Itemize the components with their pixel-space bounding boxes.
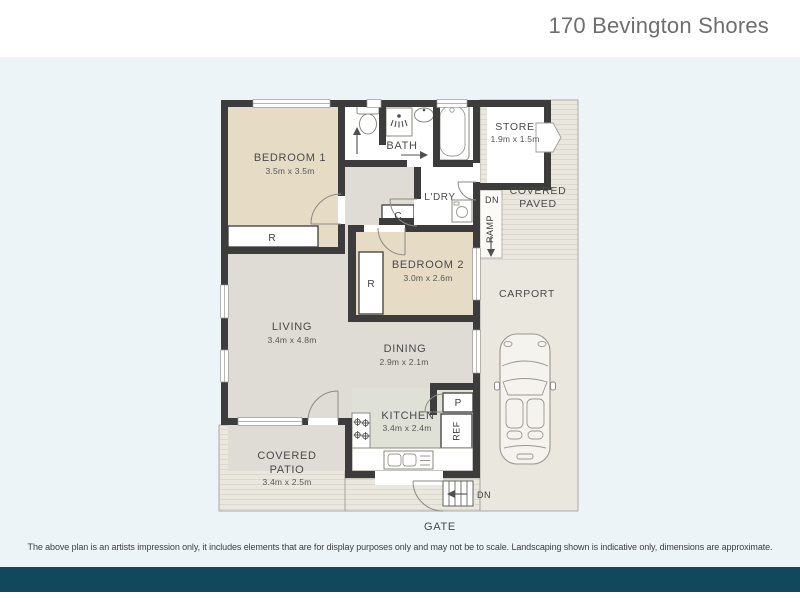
wall (345, 160, 407, 167)
bedroom1-label: BEDROOM 1 (254, 152, 326, 164)
wall (433, 100, 440, 162)
shower-head-icon (397, 114, 401, 118)
wall (433, 160, 480, 167)
bedroom2-dims: 3.0m x 2.6m (404, 273, 453, 283)
store-dims: 1.9m x 1.5m (491, 134, 540, 144)
floorplan-page: 170 Bevington Shores (0, 0, 800, 604)
ramp-label: RAMP (485, 215, 495, 243)
wall (221, 247, 345, 254)
kitchen-dims: 3.4m x 2.4m (383, 423, 432, 433)
bedroom1-dims: 3.5m x 3.5m (266, 166, 315, 176)
carport-label: CARPORT (499, 288, 555, 300)
door-opening (308, 418, 338, 425)
stove-icon (352, 413, 370, 450)
page-title: 170 Bevington Shores (549, 13, 770, 39)
cupboard-marker: C (394, 211, 401, 222)
bath-label: BATH (386, 140, 417, 152)
robe2-marker: R (367, 279, 374, 290)
covered-paved-label-1: COVERED (510, 185, 567, 197)
covered-patio-dims: 3.4m x 2.5m (263, 477, 312, 487)
dining-dims: 2.9m x 2.1m (380, 357, 429, 367)
wall (338, 100, 345, 196)
floor-plan: BEDROOM 1 3.5m x 3.5m BATH L'DRY STORE 1… (0, 57, 800, 567)
ramp-down-label: DN (485, 195, 499, 205)
gate-landing (375, 471, 443, 485)
basin-tap-icon (423, 109, 426, 112)
plan-background: BEDROOM 1 3.5m x 3.5m BATH L'DRY STORE 1… (0, 57, 800, 567)
pantry-marker: P (455, 398, 462, 409)
covered-paved-label-2: PAVED (519, 198, 557, 210)
dining-label: DINING (384, 343, 427, 355)
covered-patio-label-1: COVERED (257, 450, 316, 462)
door-opening (364, 225, 405, 232)
wall (414, 167, 421, 199)
bedroom2-label: BEDROOM 2 (392, 259, 464, 271)
gate-label: GATE (424, 521, 456, 533)
door-opening (338, 196, 345, 224)
wall (348, 225, 356, 322)
store-label: STORE (495, 121, 534, 133)
wall (348, 315, 473, 322)
laundry-label: L'DRY (424, 192, 455, 203)
car-icon (495, 334, 556, 464)
footer-accent-bar (0, 567, 800, 592)
store-floor (487, 107, 544, 183)
living-label: LIVING (272, 321, 312, 333)
fridge-marker: REF (452, 421, 462, 441)
kitchen-label: KITCHEN (381, 410, 434, 422)
washing-machine-icon (452, 200, 472, 222)
disclaimer-text: The above plan is an artists impression … (0, 542, 800, 552)
robe1-marker: R (268, 233, 275, 244)
bathtub-icon (436, 101, 469, 160)
living-dims: 3.4m x 4.8m (268, 335, 317, 345)
door-opening (414, 199, 421, 225)
door-opening (473, 163, 480, 182)
toilet-icon (360, 114, 377, 134)
steps-down-label: DN (477, 490, 491, 500)
window (367, 100, 381, 108)
bath-door-floor (405, 160, 433, 167)
wall (345, 418, 352, 478)
covered-patio-label-2: PATIO (270, 464, 305, 476)
wall (430, 383, 480, 390)
